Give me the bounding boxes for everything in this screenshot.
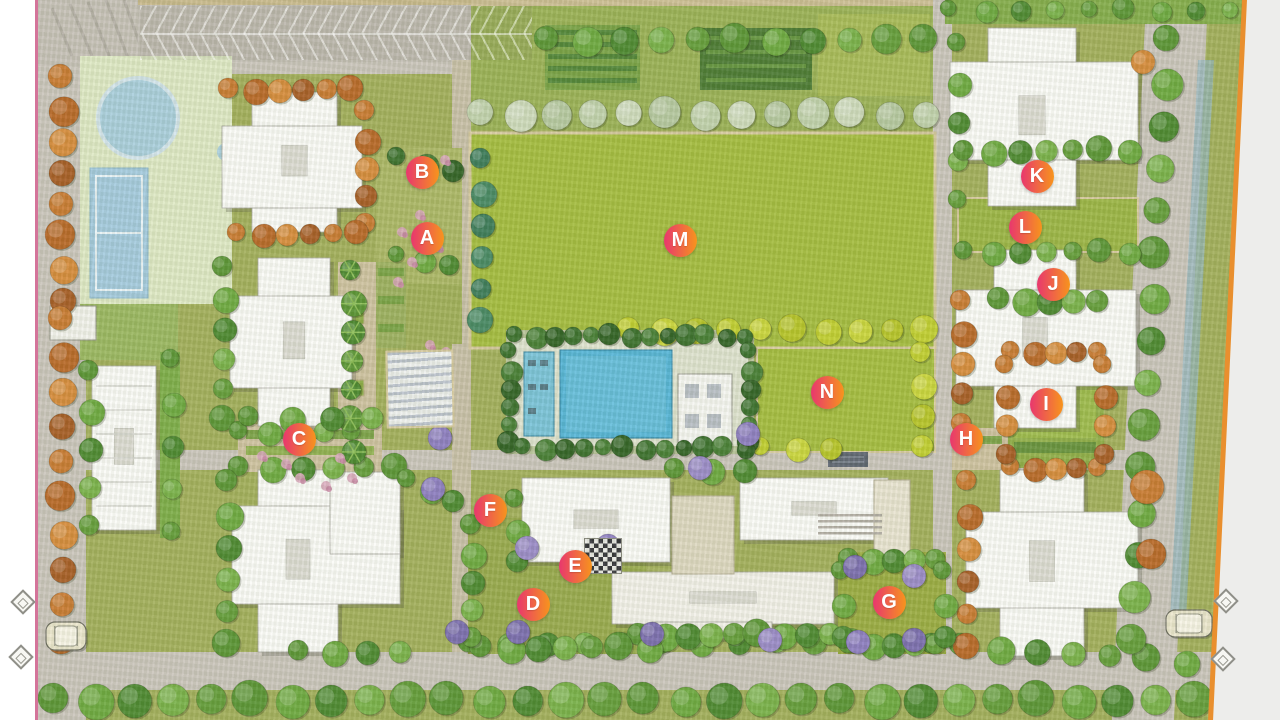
central-lawn: [470, 133, 935, 348]
parking-stripes-top: [140, 6, 532, 33]
parking-stripes-bottom: [140, 33, 532, 60]
map-marker-n: N: [811, 376, 844, 409]
wave-patterned-lawn: [387, 351, 452, 426]
plan-left-margin: [0, 0, 35, 720]
map-marker-d: D: [517, 588, 550, 621]
paved-circle-feature: [98, 78, 178, 158]
map-marker-k: K: [1021, 160, 1054, 193]
car-icon: [1166, 610, 1214, 639]
map-marker-f: F: [474, 494, 507, 527]
car-icon: [46, 622, 88, 652]
secondary-lawn: [757, 348, 935, 452]
map-marker-a: A: [411, 222, 444, 255]
map-marker-m: M: [664, 224, 697, 257]
map-marker-b: B: [406, 156, 439, 189]
map-marker-i: I: [1030, 388, 1063, 421]
map-marker-g: G: [873, 586, 906, 619]
map-marker-j: J: [1037, 268, 1070, 301]
parking-divider: [140, 33, 532, 35]
plan-boundary-line-left: [35, 0, 38, 720]
map-marker-l: L: [1009, 211, 1042, 244]
map-marker-h: H: [950, 423, 983, 456]
site-plan: ABCDEFGHIJKLMN: [0, 0, 1280, 720]
site-plan-rendering: [0, 0, 1280, 720]
map-marker-e: E: [559, 550, 592, 583]
map-marker-c: C: [283, 423, 316, 456]
parking-bays: [140, 6, 532, 60]
